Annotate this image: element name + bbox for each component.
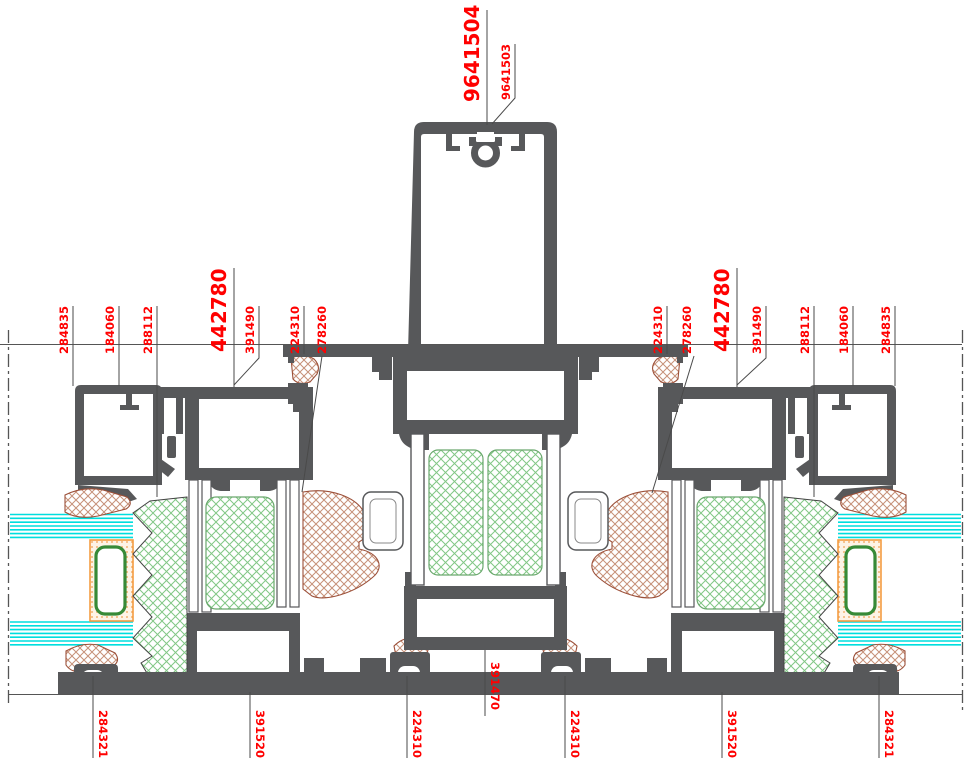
part-label-left-2: 184060 [104,306,117,354]
part-label-bottom-7: 284321 [882,710,895,758]
center-box-profile [393,357,578,434]
bottom-track-plate [58,672,899,694]
insulation-blocks [429,450,542,575]
setting-block [206,497,274,609]
interlock-cover-profile [408,122,557,352]
track-rib [360,658,386,672]
part-label-bottom-3: 224310 [410,710,423,758]
track-rib [304,658,324,672]
part-label-right-7: 284835 [880,306,893,354]
part-label-left-4: 442780 [208,269,230,353]
glass-pane-inner [10,622,133,645]
part-label-right-2: 278260 [681,306,694,354]
right-half-profiles [541,356,961,690]
part-label-right-3: 442780 [711,269,733,353]
center-bottom-box [404,586,567,650]
part-label-right-1: 224310 [652,306,665,354]
frame-screw-boss [120,394,139,410]
section-drawing: 9641504 9641503 284835 184060 288112 442… [0,0,971,766]
part-label-bottom-5: 224310 [568,710,581,758]
part-label-top-sub: 9641503 [500,44,513,100]
part-label-left-5: 391490 [244,306,257,354]
thermal-insulation-sawtooth [133,497,187,688]
part-label-left-3: 288112 [142,306,155,354]
glass-pane-outer [10,515,133,538]
frame-profile [75,385,183,505]
part-label-top-main: 9641504 [461,5,483,102]
part-label-left-7: 278260 [316,306,329,354]
gasket-224310-top [291,356,318,384]
spacer-desiccant-chamber [96,547,125,614]
part-label-right-4: 391490 [751,306,764,354]
part-label-bottom-4: 391470 [488,662,501,710]
profile-geometry [0,0,971,766]
part-label-left-1: 284835 [58,306,71,354]
side-hook-profile [363,492,403,550]
part-label-right-6: 184060 [838,306,851,354]
part-label-right-5: 288112 [799,306,812,354]
left-half-profiles [10,356,430,690]
part-label-bottom-6: 391520 [725,710,738,758]
part-label-bottom-2: 391520 [253,710,266,758]
part-label-bottom-1: 284321 [96,710,109,758]
part-label-left-6: 224310 [289,306,302,354]
